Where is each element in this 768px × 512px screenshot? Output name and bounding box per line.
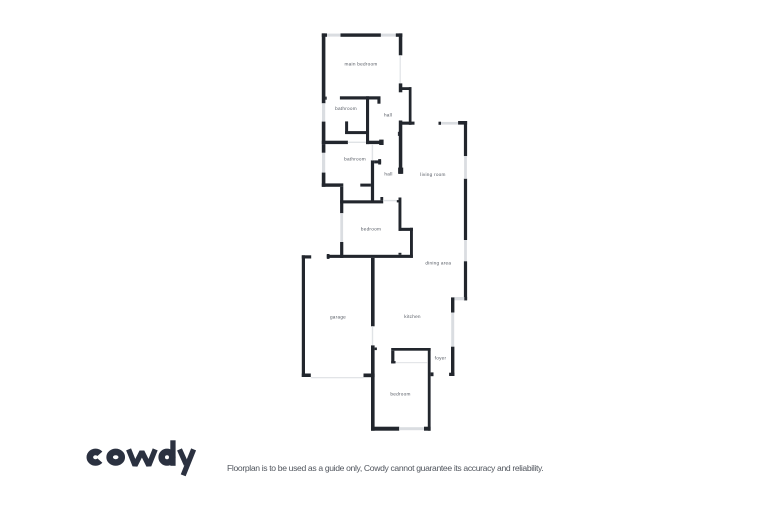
svg-text:bedroom: bedroom — [361, 227, 381, 232]
svg-text:dining area: dining area — [425, 261, 451, 266]
svg-text:hall: hall — [384, 172, 392, 177]
svg-text:kitchen: kitchen — [404, 314, 421, 319]
svg-text:bedroom: bedroom — [390, 392, 410, 397]
svg-text:bathroom: bathroom — [344, 156, 366, 161]
svg-text:garage: garage — [330, 314, 346, 319]
svg-text:main bedroom: main bedroom — [345, 62, 378, 67]
svg-text:living room: living room — [420, 172, 445, 177]
svg-text:hall: hall — [384, 113, 392, 118]
svg-text:Floorplan is to be used as a g: Floorplan is to be used as a guide only,… — [227, 463, 543, 473]
svg-text:foyer: foyer — [435, 355, 447, 360]
svg-text:bathroom: bathroom — [335, 106, 357, 111]
